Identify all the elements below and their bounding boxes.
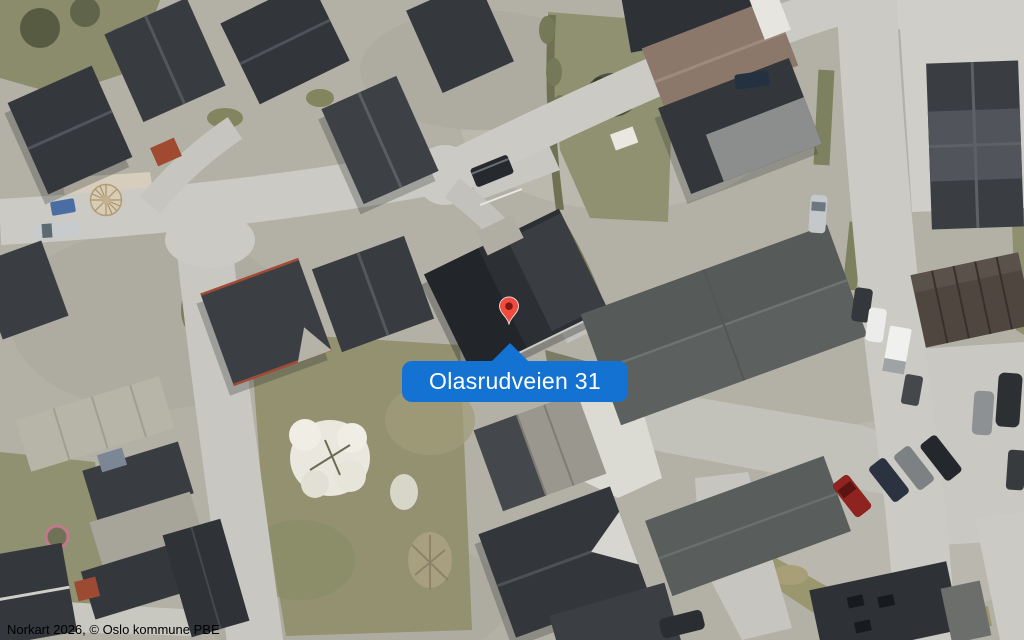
pin-body <box>499 297 518 324</box>
map-canvas[interactable]: Olasrudveien 31 Norkart 2026, © Oslo kom… <box>0 0 1024 640</box>
address-label: Olasrudveien 31 <box>429 368 601 395</box>
pin-core <box>505 302 513 310</box>
address-callout[interactable]: Olasrudveien 31 <box>402 361 628 402</box>
map-attribution: Norkart 2026, © Oslo kommune PBE <box>7 622 220 637</box>
location-pin-icon[interactable] <box>498 296 520 325</box>
